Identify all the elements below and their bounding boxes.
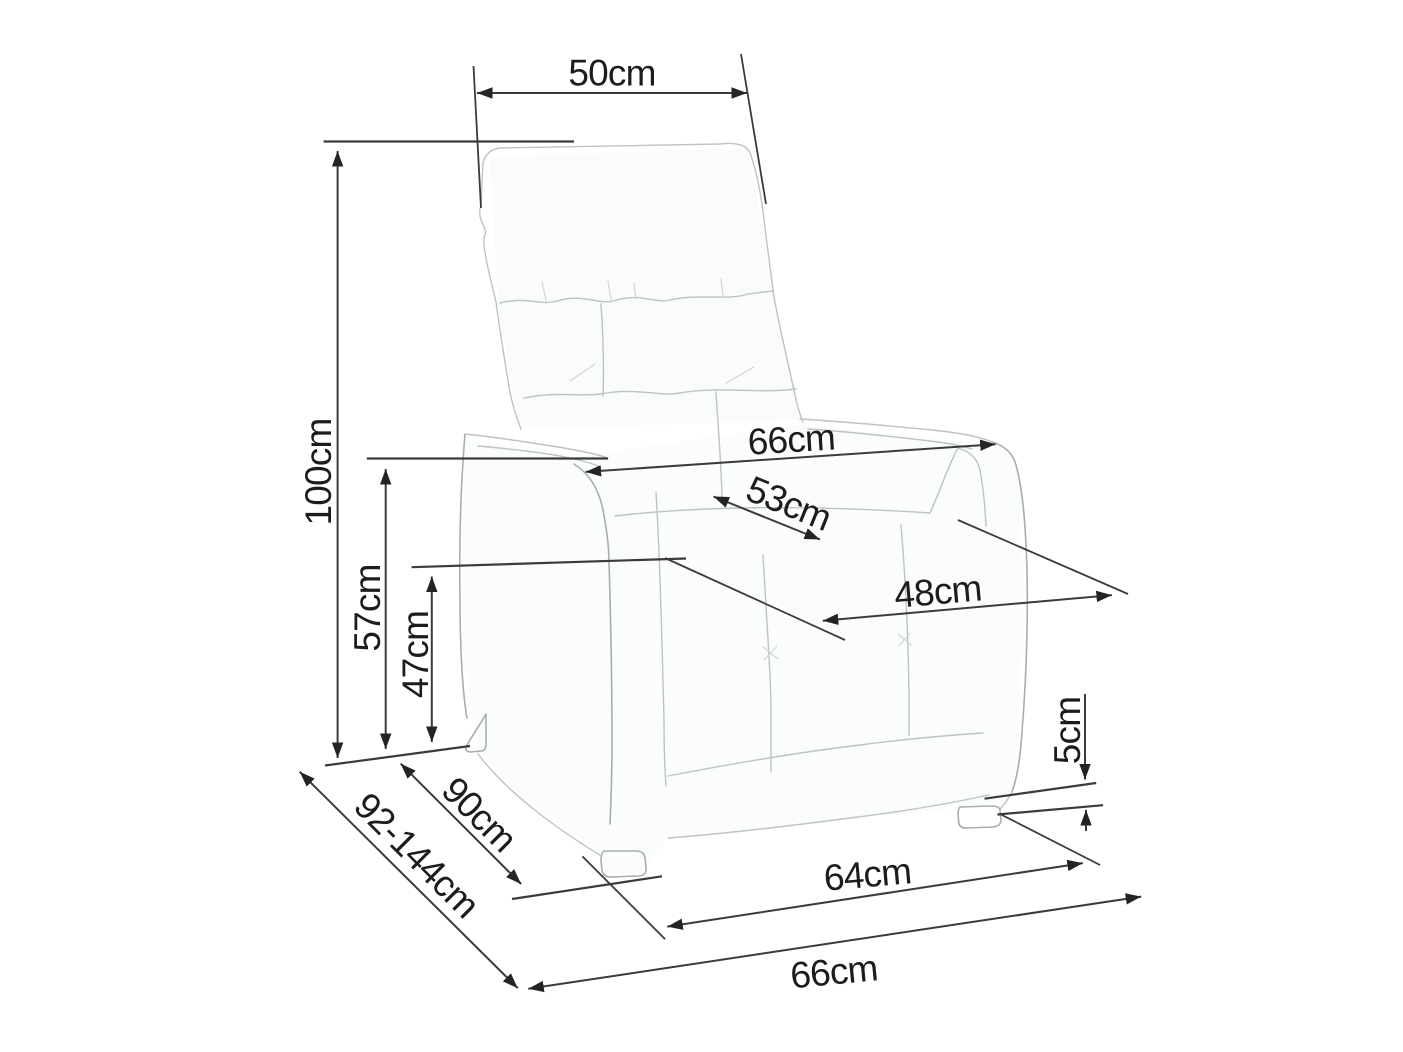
svg-text:64cm: 64cm bbox=[822, 850, 913, 898]
svg-text:5cm: 5cm bbox=[1047, 697, 1088, 765]
svg-text:50cm: 50cm bbox=[568, 53, 655, 94]
svg-text:57cm: 57cm bbox=[347, 564, 388, 651]
svg-text:48cm: 48cm bbox=[893, 567, 984, 615]
svg-text:66cm: 66cm bbox=[788, 947, 879, 996]
svg-text:100cm: 100cm bbox=[298, 418, 339, 525]
svg-text:66cm: 66cm bbox=[747, 416, 837, 462]
svg-text:47cm: 47cm bbox=[395, 611, 436, 698]
